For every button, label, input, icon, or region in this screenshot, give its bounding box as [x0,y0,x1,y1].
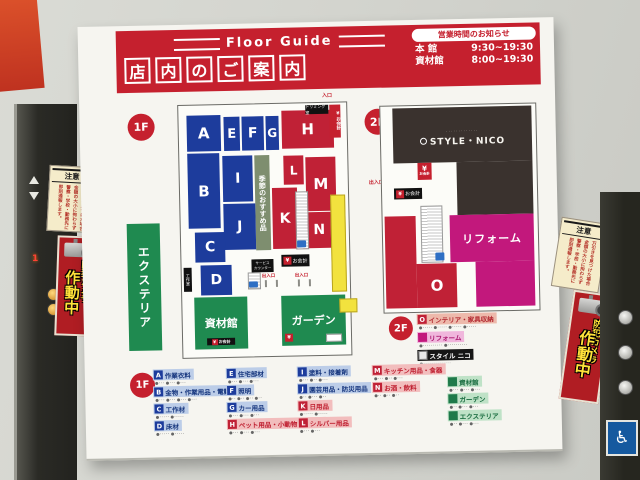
decor-lines-left [174,38,220,51]
checkout-2f-landing: ¥お会計 [394,188,422,200]
floor-guide-board: Floor Guide 店 内 の ご 案 内 営業時間のお知らせ 本 館9:3… [78,17,563,461]
zone-e-block: E [223,117,240,151]
hours-title: 営業時間のお知らせ [412,26,536,42]
materials-checkout-label: ¥お会計 [207,338,235,346]
escalator-icon [435,252,444,260]
checkout-2f-in-hall: ¥お会計 [417,163,431,180]
exit-gate-icon [298,279,311,286]
panel-button[interactable] [618,345,633,360]
hours-time: 8:00~19:30 [471,53,533,66]
badge-1f-map: 1F [127,113,155,141]
escalator-icon [297,240,306,247]
down-arrow-icon[interactable] [29,192,39,200]
legend-item-j: J園芸用品・防災用品●･･ ●･･･ ●･･ [297,382,371,395]
legend-item-n: Nお酒・飲料●･･ ●･･ ●･･ [372,381,420,393]
legend-item-g: Gカー用品●･･･ ●･･･ ●･･･ [226,401,267,413]
legend-item-m: Mキッチン用品・食器●･･･ ●･･ ●･･･ [372,363,446,376]
entrance-label-top: 入口 [322,92,332,99]
legend-item-k: K日用品●･････ ●･････ [297,400,332,412]
legend-item-d: D床材●･････ ●･････ [154,420,182,432]
legend-item-i: I塗料・接着剤●･･･ ●･･ ●･･･ [297,365,351,377]
zone-f-block: F [241,116,264,150]
zone-i-block: I [222,155,253,202]
floor-guide-row: Floor Guide [174,33,385,52]
trimming-room-label: トリミング室 [305,105,328,114]
up-arrow-icon[interactable] [29,176,39,184]
store-entrance-scene: 1 注意 万引きを見つけた場合 金額の大小に拘わらず 警察・学校・勤務先に 即刻… [0,0,640,480]
camera-text-large: 作動中 [568,328,598,379]
style-nico-hall-upper: ･････････････ STYLE・NICO [392,106,532,164]
zone-d-block: D [201,265,233,296]
legend-item-e: E住宅部材●･･･ ●･･･ ●･･･ [226,367,267,379]
zone-b-block: B [187,153,221,229]
legend-2f-style-nico: スタイル ニコ ●･･････････････ [417,349,473,361]
panel-button[interactable] [618,310,633,325]
zone-c-block: C [195,232,226,263]
zone-reform-upper: リフォーム [450,214,535,263]
legend-item-materials: 資材館●･･･ ●･･･ ●･･･ [447,376,482,388]
wheelchair-icon: ♿ [614,428,629,448]
badge-2f-legend: 2F [389,316,413,340]
garden-checkout-yen: ¥ [285,334,293,342]
checkout-strip-top: ¥お会計 [329,105,341,138]
zone-o-column [385,216,418,309]
tenant-booth-small [339,298,357,312]
legend-2f-reform: リフォーム ●･･････････ ●･･････････ [417,331,465,343]
zone-reform-lower [476,261,536,307]
board-title: 店 内 の ご 案 内 [124,54,311,84]
badge-1f-legend: 1F [130,372,156,398]
zone-l-block: L [283,155,304,184]
legend-item-c: C工作材●･････ ●･････ [153,403,188,415]
escalator-icon [249,281,258,287]
legend-item-l: Lシルバー用品●･･･ ●･･･ [298,416,352,428]
checkout-center: ¥お会計 [281,254,309,267]
zone-a-block: A [186,115,221,152]
garden-small-booth [326,334,342,342]
exit-label-east: 出入口 [295,272,309,278]
title-char: ご [217,56,244,83]
panel-button[interactable] [618,380,633,395]
wheelchair-accessible-sign: ♿ [606,420,638,456]
zone-o-block: O [417,263,458,308]
hours-label: 資材館 [415,55,444,67]
zone-exterior: エクステリア [127,223,163,351]
floor-indicator-led: 1 [32,254,38,264]
title-char: 内 [155,57,182,84]
title-char: の [186,56,213,83]
board-header: Floor Guide 店 内 の ご 案 内 営業時間のお知らせ 本 館9:3… [116,22,541,93]
hours-label: 本 館 [415,44,438,56]
legend-item-f: F照明●･･ ●･･ ●･･ ●･･ [226,384,254,396]
seasonal-picks-strip: 季節のおすすめ品 [254,155,271,250]
orange-poster-edge [0,0,45,92]
title-char: 内 [279,54,306,81]
legend-item-exterior: エクステリア●･･ ●･･･ ●･･･ [448,409,502,421]
notice-body: 万引きを見つけた場合 金額の大小に拘わらず 警察・学校・勤務先に 即刻通報します… [560,237,598,289]
zone-materials-hall: 資材館 ¥お会計 [194,297,248,350]
legend-item-garden: ガーデン●･･ ●･･･ ●･･･ [447,393,488,405]
map-1f: A E F G H B I 季節のおすすめ品 J L M K N C D 資材館… [177,101,352,359]
legend-item-a: A作業衣料●･･･ ●･･･ ●･･･ [153,369,194,381]
floor-guide-label: Floor Guide [226,34,333,51]
service-counter: サービスカウンター [251,259,273,272]
title-char: 案 [248,55,275,82]
exit-gate-icon [265,280,278,287]
business-hours: 営業時間のお知らせ 本 館9:30~19:30 資材館8:00~19:30 [412,26,537,67]
decor-lines-right [338,34,384,47]
camera-text-large: 作動中 [61,270,84,316]
zone-g-block: G [265,116,279,150]
craft-room-label: 工作室 [184,268,193,292]
style-nico-hall-lower [456,161,533,216]
title-char: 店 [124,58,151,85]
zone-garden: ガーデン ¥ [281,294,346,345]
zone-j-block: J [223,203,256,250]
legend-2f-interior: O インテリア・家具収納 ●･････ ●･････ ●･････ ●･････ [417,312,497,325]
tenant-booth-tall [330,194,347,291]
map-2f: ･････････････ STYLE・NICO ¥お会計 ¥お会計 O リフォ… [379,102,540,313]
exit-label-west: 出入口 [262,273,276,279]
brand-mark-icon [420,138,427,145]
brand-logo: STYLE・NICO [393,133,532,149]
